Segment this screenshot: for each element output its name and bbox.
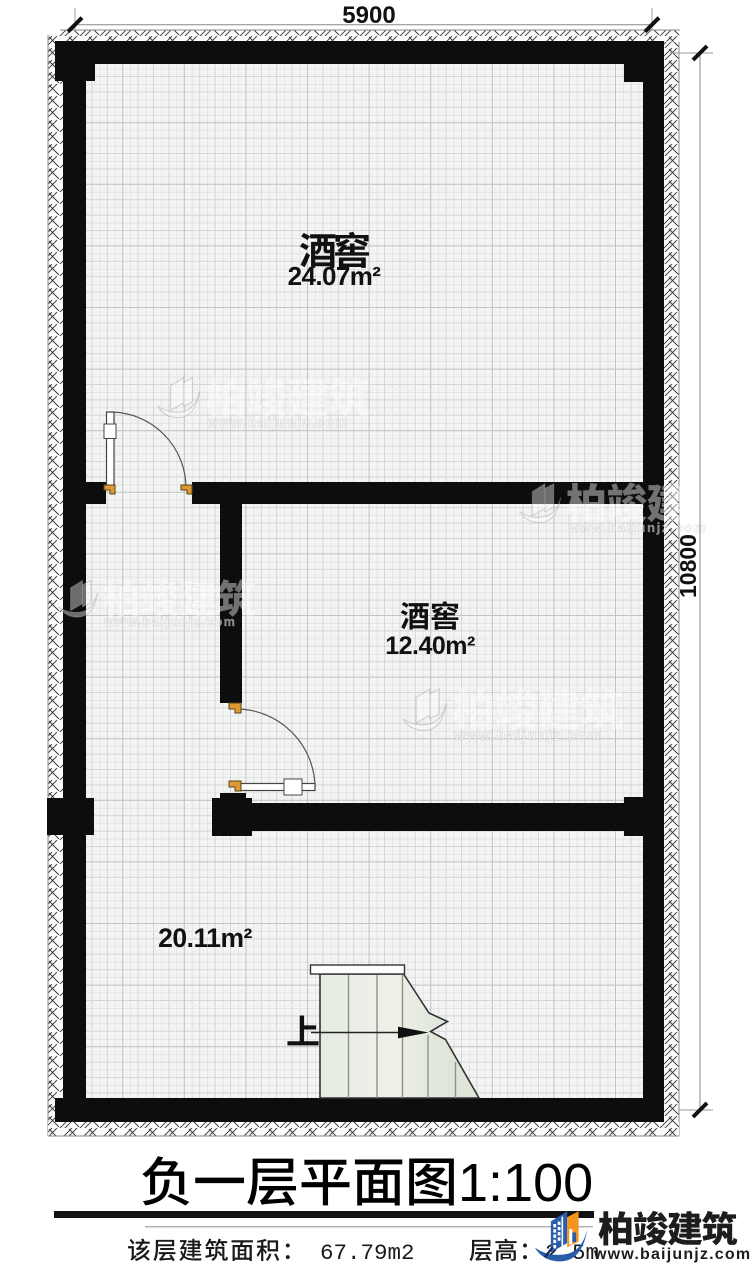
svg-text:5900: 5900 — [342, 2, 395, 29]
svg-text:10800: 10800 — [675, 534, 701, 598]
svg-text:www.baijunjz.com: www.baijunjz.com — [593, 1246, 750, 1263]
svg-text:67.79m2: 67.79m2 — [320, 1240, 415, 1266]
svg-text:1:100: 1:100 — [458, 1153, 593, 1213]
svg-text:20.11m²: 20.11m² — [158, 923, 252, 953]
svg-text:24.07m²: 24.07m² — [288, 261, 382, 291]
svg-text:12.40m²: 12.40m² — [385, 632, 475, 660]
